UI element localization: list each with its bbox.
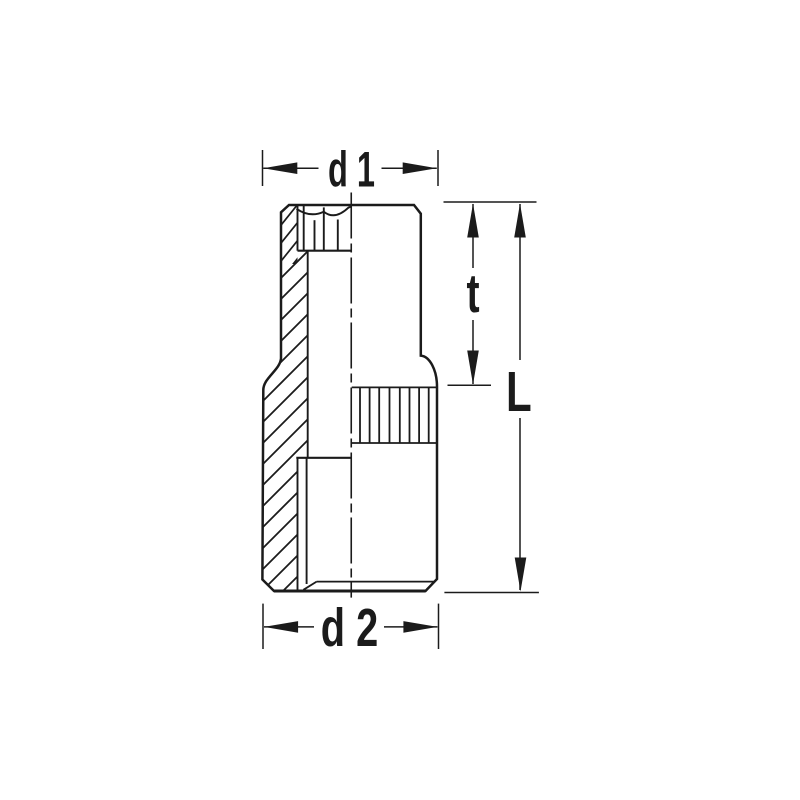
svg-text:t: t [467, 263, 480, 324]
svg-text:L: L [506, 360, 532, 423]
svg-text:d 1: d 1 [328, 142, 375, 198]
svg-text:d 2: d 2 [321, 599, 378, 658]
